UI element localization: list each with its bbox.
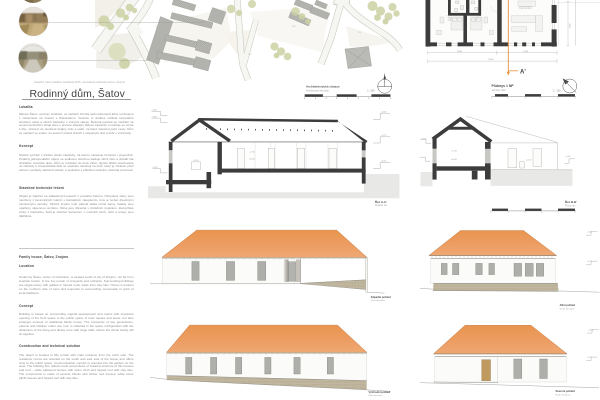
svg-text:±0,000: ±0,000 xyxy=(249,159,255,161)
svg-text:Řez B-B': Řez B-B' xyxy=(565,199,577,204)
svg-text:102/3: 102/3 xyxy=(216,15,221,17)
svg-text:1 : 500: 1 : 500 xyxy=(367,90,375,93)
svg-text:+2,750: +2,750 xyxy=(587,357,592,359)
svg-text:1 : 100: 1 : 100 xyxy=(553,90,561,93)
svg-text:7,560: 7,560 xyxy=(570,23,572,29)
svg-text:North elevation: North elevation xyxy=(556,393,571,396)
svg-text:-0,450: -0,450 xyxy=(566,156,571,158)
svg-text:95/1: 95/1 xyxy=(292,26,296,28)
svg-text:+4,060: +4,060 xyxy=(588,329,593,331)
svg-text:Jižní pohled: Jižní pohled xyxy=(560,303,576,307)
svg-text:7,900: 7,900 xyxy=(523,51,529,53)
svg-text:East elevation: East elevation xyxy=(369,394,384,397)
svg-text:-0,450: -0,450 xyxy=(153,167,158,169)
svg-text:Východní pohled: Východní pohled xyxy=(369,390,391,394)
svg-text:+4,060: +4,060 xyxy=(587,232,592,234)
svg-text:+3,930: +3,930 xyxy=(381,112,386,114)
svg-text:64/2: 64/2 xyxy=(248,54,252,56)
svg-text:Půdorys 1 NP: Půdorys 1 NP xyxy=(492,84,515,88)
svg-text:Řez A-A': Řez A-A' xyxy=(375,199,387,204)
svg-text:Příčný řez: Příčný řez xyxy=(565,205,576,207)
svg-text:1st floor plan: 1st floor plan xyxy=(492,89,507,92)
svg-text:±0,000: ±0,000 xyxy=(381,161,386,163)
svg-text:9,600: 9,600 xyxy=(457,51,463,53)
svg-text:+2,750: +2,750 xyxy=(381,135,386,137)
svg-text:Severní pohled: Severní pohled xyxy=(556,389,576,393)
svg-text:South elevation: South elevation xyxy=(560,307,576,310)
svg-text:±0,000: ±0,000 xyxy=(451,159,457,161)
svg-text:A': A' xyxy=(520,70,526,76)
svg-text:-0,450: -0,450 xyxy=(193,160,198,162)
svg-text:120: 120 xyxy=(358,32,361,34)
svg-text:+2,750: +2,750 xyxy=(249,151,255,153)
svg-text:+4,060: +4,060 xyxy=(152,110,157,112)
svg-text:Architektonická situace: Architektonická situace xyxy=(306,85,340,89)
svg-text:+2,750: +2,750 xyxy=(587,261,592,263)
svg-text:Podélný řez: Podélný řez xyxy=(375,205,388,207)
svg-text:Západní pohled: Západní pohled xyxy=(371,295,391,299)
svg-text:West elevation: West elevation xyxy=(371,299,386,302)
svg-text:+3,930: +3,930 xyxy=(421,139,426,141)
svg-text:87: 87 xyxy=(172,42,174,44)
svg-text:+3,930: +3,930 xyxy=(152,116,157,118)
svg-text:17,500: 17,500 xyxy=(488,59,495,61)
svg-text:-0,450: -0,450 xyxy=(526,160,531,162)
svg-text:+2,750: +2,750 xyxy=(451,151,457,153)
svg-text:Architectural site plan: Architectural site plan xyxy=(306,89,330,92)
